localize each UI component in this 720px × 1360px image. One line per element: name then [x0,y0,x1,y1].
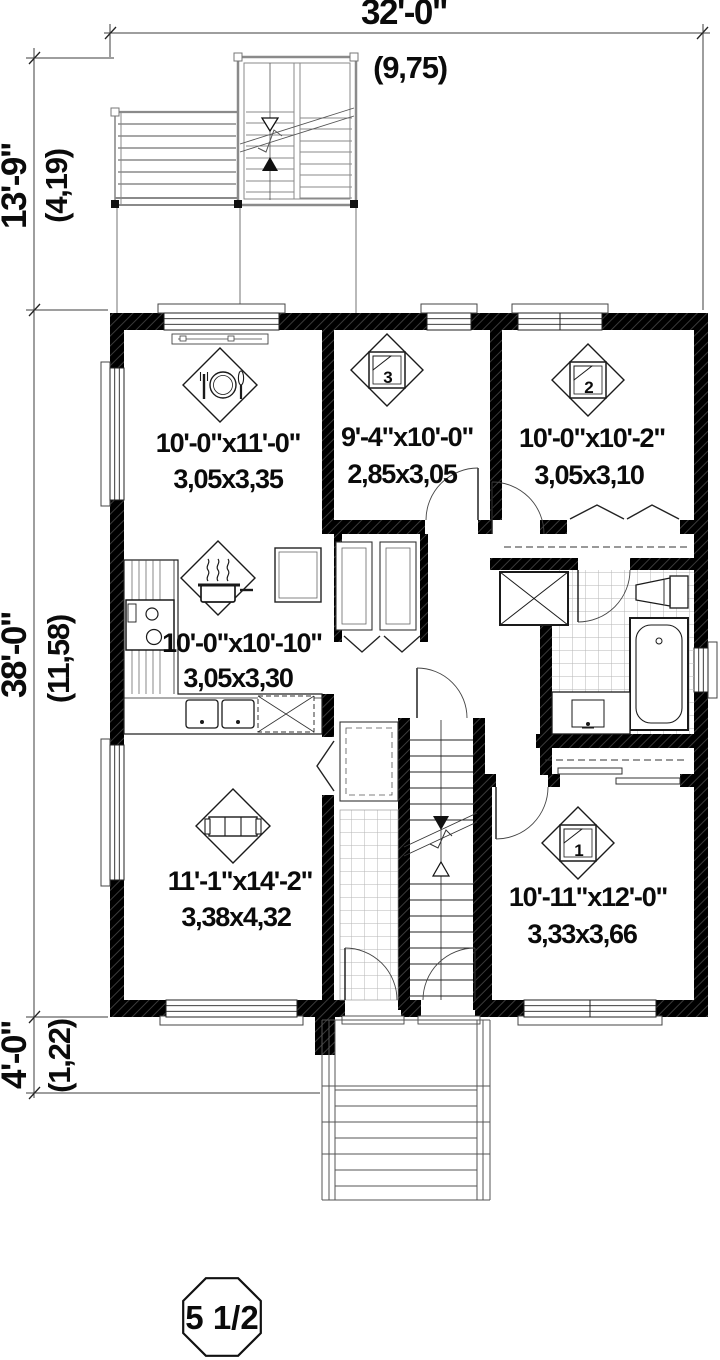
bedroom1-number: 1 [574,841,583,860]
balcony-post [350,200,358,208]
stair-hall-door [417,668,467,718]
refrigerator [275,548,321,602]
kitchen-size-metric: 3,05x3,30 [183,663,292,693]
bedroom1-size-imperial: 10'-11"x12'-0" [509,882,668,912]
main-staircase [404,720,477,1000]
dining-window [158,304,285,344]
bedroom2-size-metric: 3,05x3,10 [534,460,643,490]
rear-balcony [111,53,358,313]
dim-balcony-metric: (4,19) [39,149,74,223]
dim-balcony-imperial: 13'-9" [0,143,34,229]
bedroom1-window [518,1000,662,1025]
dishwasher [258,696,314,732]
balcony-post [350,53,358,61]
dim-width-imperial: 32'-0" [361,0,447,32]
entry-tile-floor [340,810,398,1000]
dim-width-metric: (9,75) [373,50,447,85]
front-steps [322,1020,490,1200]
floor-plan-canvas: 32'-0" (9,75) 13'-9" (4,19) 38'-0" (11,5… [0,0,720,1360]
front-entry-door-right [423,948,475,1000]
bedroom3-number: 3 [383,368,392,387]
living-size-metric: 3,38x4,32 [181,902,290,932]
bathroom-vanity [552,692,630,734]
plan-badge: 5 1/2 [183,1278,261,1356]
bathtub [630,618,688,730]
living-size-imperial: 11'-1"x14'-2" [168,866,313,896]
bed-icon: 2 [552,344,624,416]
entry-vestibule [340,810,398,1000]
bed-icon: 1 [542,807,614,879]
left-living-window [101,739,124,886]
stair-down-arrow [262,118,278,131]
bedroom3-size-metric: 2,85x3,05 [347,459,457,489]
stair-up-arrow [262,157,278,171]
stair-up-arrow [433,862,449,876]
bedroom1-door [496,787,548,839]
bedroom2-window [512,304,608,330]
sofa-icon [196,789,270,863]
bathroom [500,570,694,734]
balcony-railing [115,112,356,205]
bedroom1-size-metric: 3,33x3,66 [527,919,637,949]
dim-porch-metric: (1,22) [42,1019,77,1093]
balcony-post [234,200,242,208]
bedroom2-size-imperial: 10'-0"x10'-2" [519,423,665,453]
linen-closet [500,572,568,625]
balcony-post [111,200,119,208]
dim-depth-metric: (11,58) [41,615,76,703]
living-window [160,1000,303,1025]
bedroom2-number: 2 [584,378,593,397]
dining-size-imperial: 10'-0"x11'-0" [156,428,301,458]
dining-icon [183,348,257,422]
stair-down-arrow [433,816,449,830]
bedroom3-window [421,304,477,330]
dim-depth-imperial: 38'-0" [0,612,34,698]
kitchen-size-imperial: 10'-0"x10'-10" [162,628,322,658]
bedroom1-closet [545,760,686,784]
cooking-pot-icon [181,541,255,615]
bed-icon: 3 [351,334,423,406]
bathroom-window [694,642,717,698]
balcony-post [234,53,242,61]
balcony-post [111,108,119,116]
hall-closet [336,542,420,652]
left-dining-window [101,362,124,506]
bedroom3-size-imperial: 9'-4"x10'-0" [341,422,474,452]
bedroom2-closet [504,505,690,547]
badge-label: 5 1/2 [185,1299,258,1336]
dim-porch-imperial: 4'-0" [0,1021,34,1089]
floor-plan-page: 32'-0" (9,75) 13'-9" (4,19) 38'-0" (11,5… [0,0,720,1360]
dining-size-metric: 3,05x3,35 [173,464,283,494]
